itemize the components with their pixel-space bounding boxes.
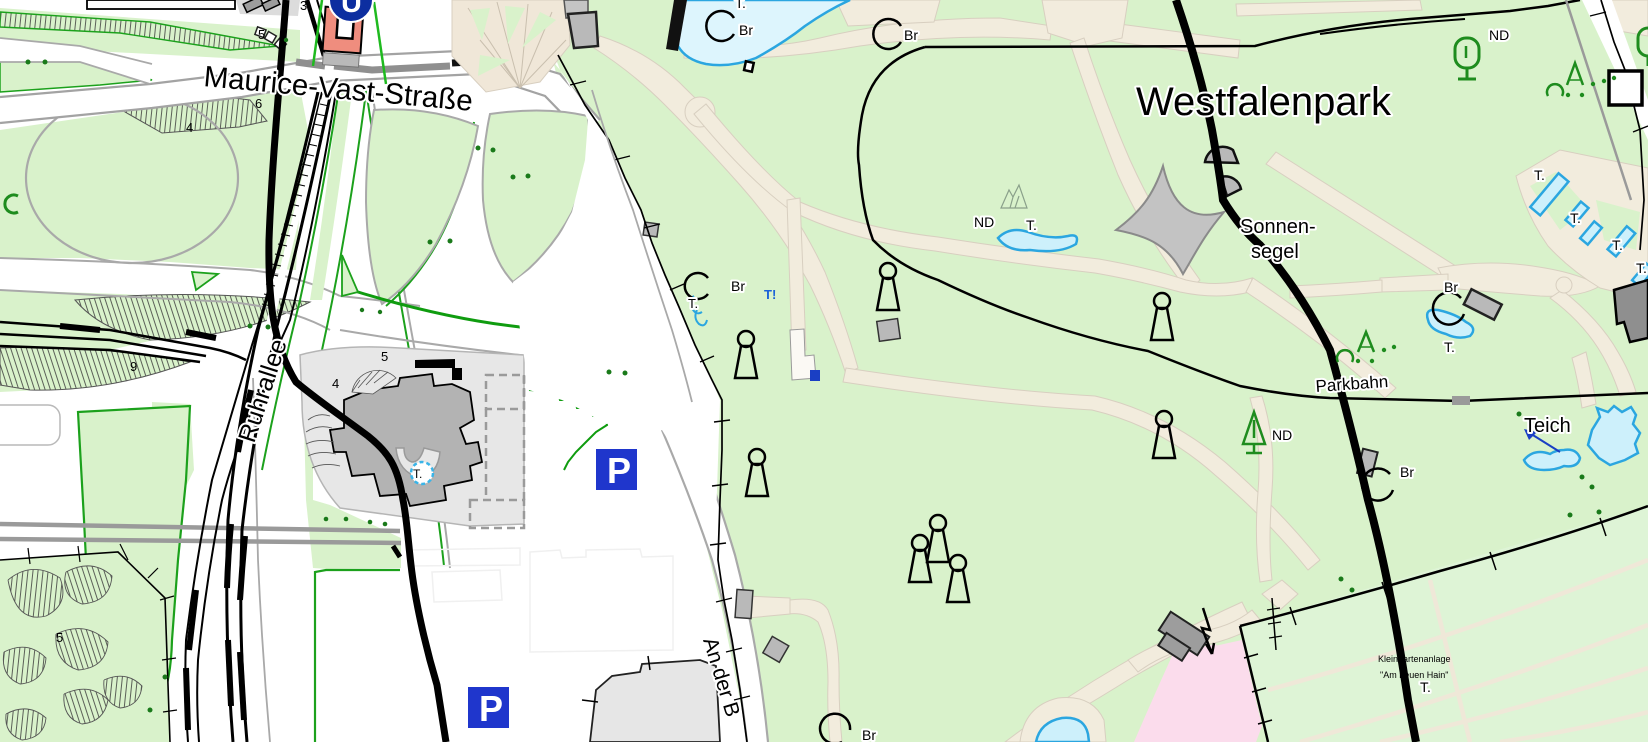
svg-text:Br: Br <box>731 278 745 294</box>
svg-text:T.: T. <box>688 296 698 311</box>
svg-text:T.: T. <box>1612 237 1623 253</box>
svg-text:T.: T. <box>1534 167 1545 183</box>
svg-text:Westfalenpark: Westfalenpark <box>1136 80 1392 124</box>
svg-text:P: P <box>479 688 503 729</box>
svg-text:T.: T. <box>1026 217 1037 233</box>
svg-text:Kleingartenanlage: Kleingartenanlage <box>1378 654 1451 664</box>
svg-text:T!: T! <box>764 287 776 302</box>
svg-text:Br: Br <box>1444 279 1458 295</box>
svg-text:4: 4 <box>332 376 339 391</box>
svg-text:ND: ND <box>1272 427 1292 443</box>
svg-text:4: 4 <box>186 120 193 135</box>
svg-text:U: U <box>341 0 362 19</box>
svg-text:Sonnen-: Sonnen- <box>1240 216 1316 238</box>
svg-text:Br: Br <box>904 27 918 43</box>
svg-text:9: 9 <box>130 359 137 374</box>
svg-text:5: 5 <box>381 349 388 364</box>
svg-text:5: 5 <box>258 27 265 42</box>
svg-text:6: 6 <box>255 96 262 111</box>
svg-text:"Am neuen Hain": "Am neuen Hain" <box>1380 670 1448 680</box>
svg-text:T.: T. <box>1570 210 1581 226</box>
svg-text:Br: Br <box>739 22 753 38</box>
svg-text:5: 5 <box>56 630 63 645</box>
svg-text:P: P <box>607 450 631 491</box>
svg-text:segel: segel <box>1251 241 1299 263</box>
svg-text:ND: ND <box>974 214 994 230</box>
svg-text:Teich: Teich <box>1524 415 1571 437</box>
svg-text:3: 3 <box>300 0 307 13</box>
svg-text:T.: T. <box>1636 260 1647 276</box>
svg-text:Br: Br <box>1400 464 1414 480</box>
svg-text:ND: ND <box>1489 27 1509 43</box>
svg-text:Br: Br <box>862 727 876 742</box>
svg-text:T.: T. <box>413 467 422 481</box>
svg-text:T.: T. <box>1420 679 1431 695</box>
svg-text:T.: T. <box>1444 339 1455 355</box>
svg-text:T.: T. <box>735 0 746 11</box>
